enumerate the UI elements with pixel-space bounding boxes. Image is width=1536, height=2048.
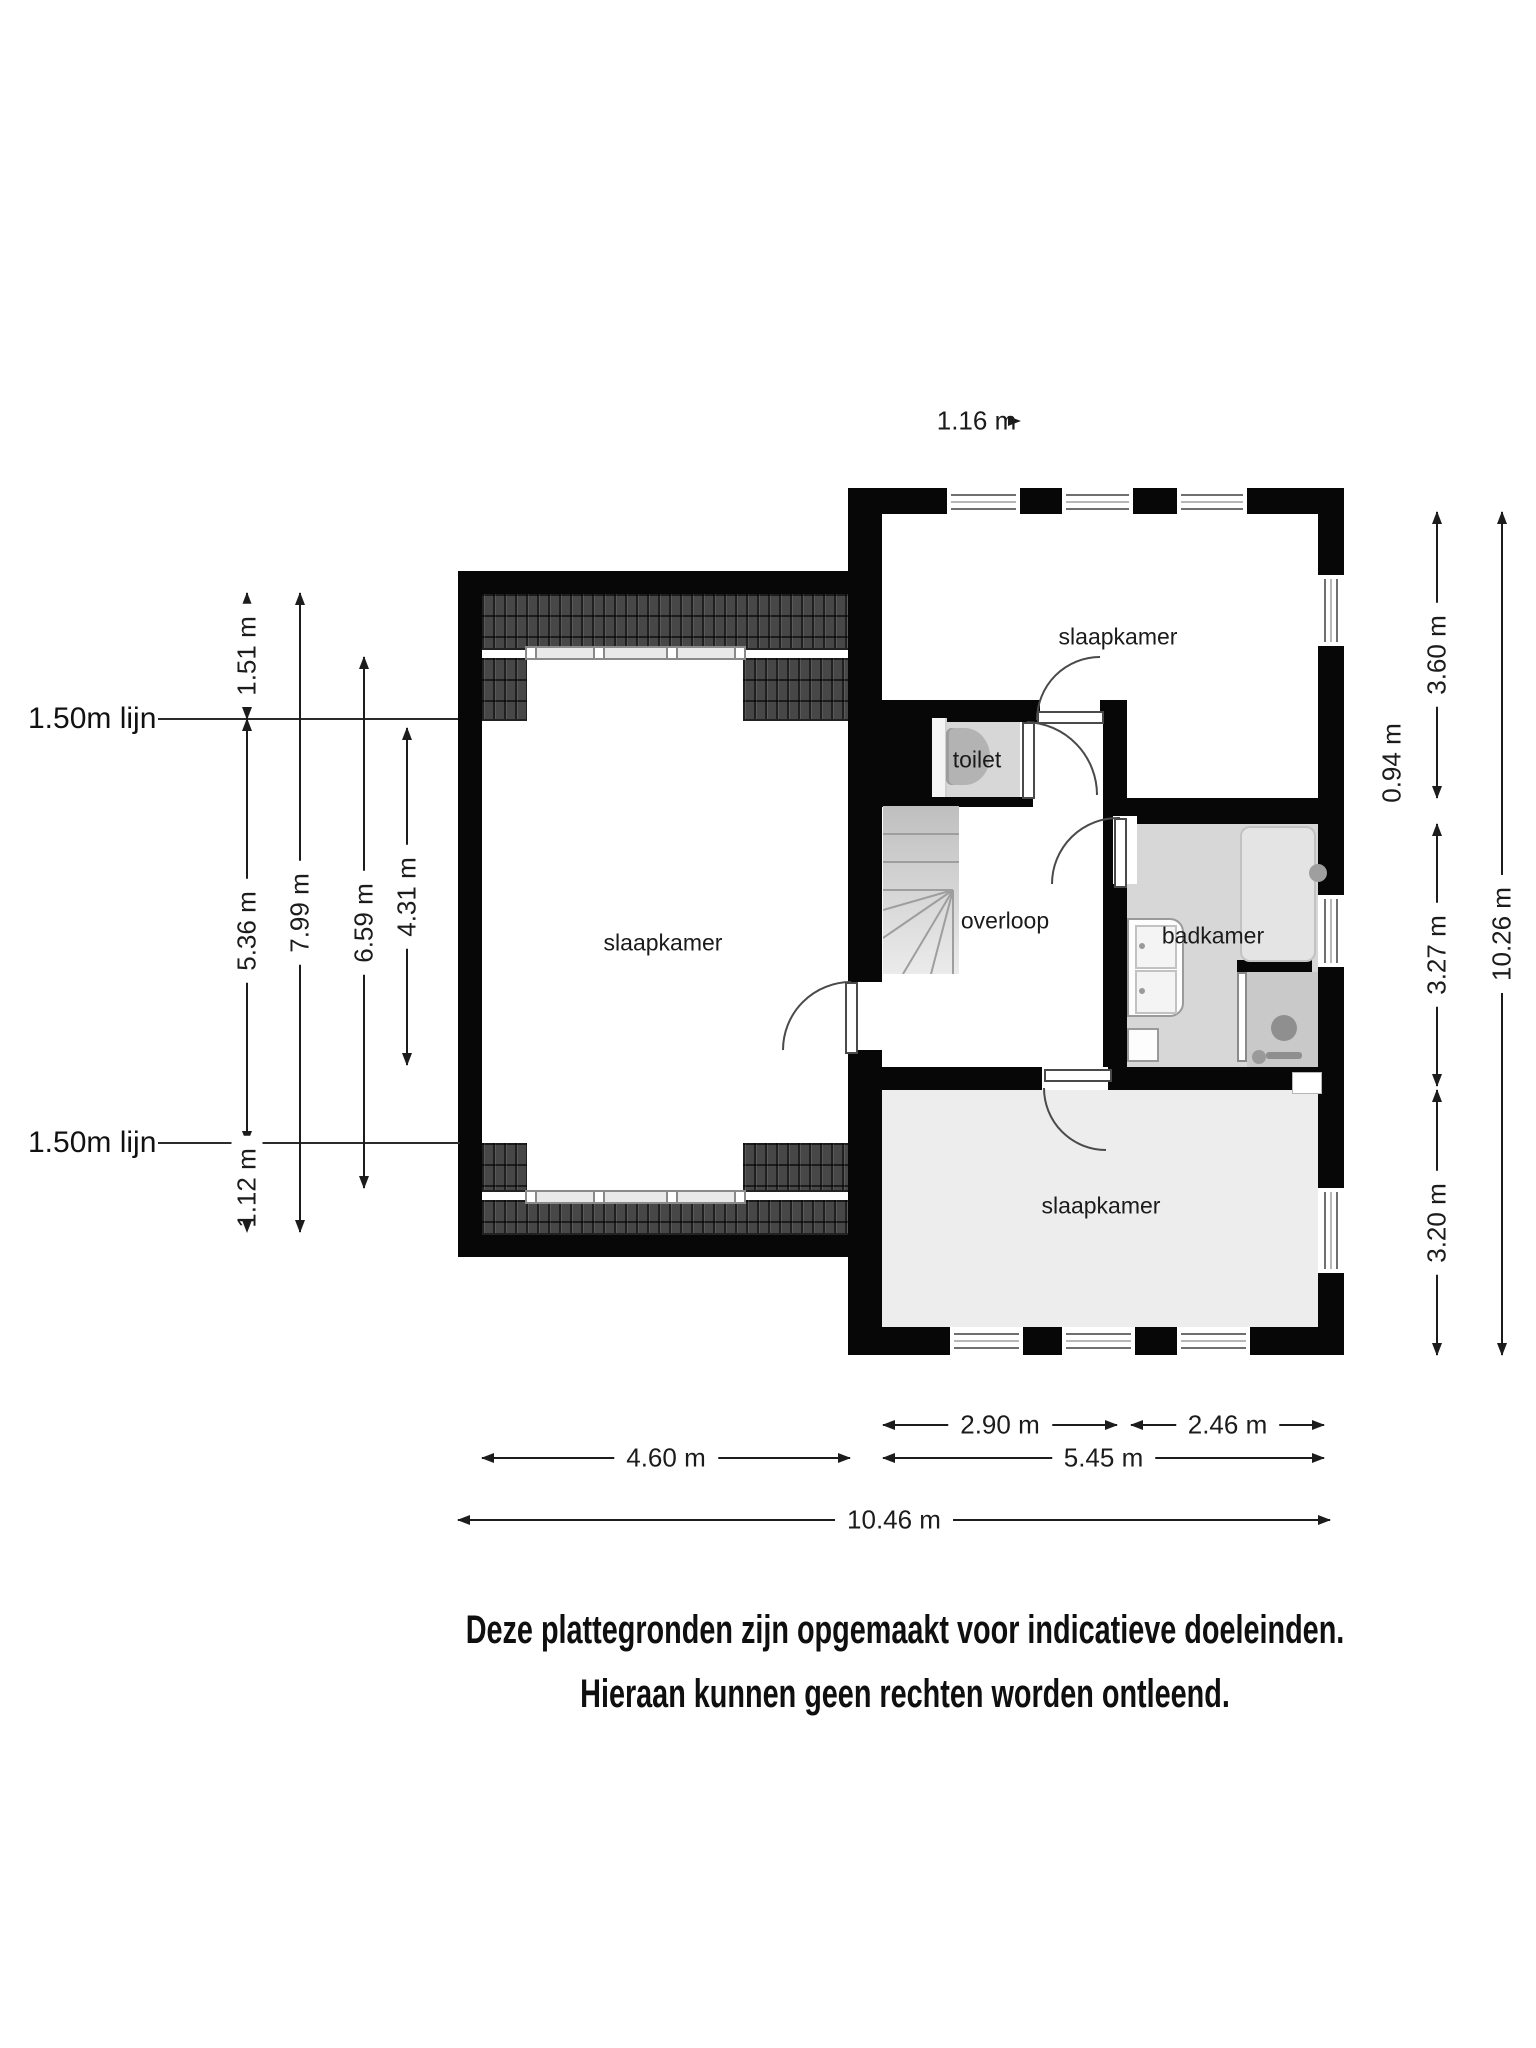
window-glass bbox=[1324, 579, 1338, 642]
disclaimer-line-2: Hieraan kunnen geen rechten worden ontle… bbox=[466, 1662, 1345, 1726]
roof-window-mullion bbox=[734, 646, 746, 660]
window-north-1 bbox=[947, 488, 1020, 516]
room-label-landing: overloop bbox=[961, 908, 1049, 935]
room-label-toilet: toilet bbox=[953, 747, 1002, 774]
dim-left-1-51: 1.51 m bbox=[246, 593, 248, 719]
roof-window-top bbox=[525, 646, 746, 660]
wall-toilet-north bbox=[932, 700, 1040, 722]
wall-bathroom-north bbox=[1127, 798, 1318, 824]
roof-window-mullion bbox=[525, 646, 537, 660]
window-south-2 bbox=[1062, 1327, 1135, 1355]
wall-left-block-south bbox=[458, 1233, 882, 1257]
window-glass bbox=[1066, 494, 1129, 510]
dim-bottom-2-46: 2.46 m bbox=[1131, 1424, 1324, 1426]
roof-band-top-right bbox=[743, 658, 848, 721]
height-line-1 bbox=[158, 718, 458, 720]
window-glass bbox=[1324, 1192, 1338, 1269]
roof-band-top-full bbox=[482, 594, 848, 650]
roof-window-mullion bbox=[666, 1190, 678, 1204]
window-glass bbox=[1181, 494, 1243, 510]
floorplan-page: slaapkamer slaapkamer toilet overloop ba… bbox=[0, 0, 1536, 2048]
room-label-bedroom-top: slaapkamer bbox=[1059, 624, 1178, 651]
disclaimer-line-1: Deze plattegronden zijn opgemaakt voor i… bbox=[466, 1598, 1345, 1662]
dim-left-6-59: 6.59 m bbox=[363, 657, 365, 1188]
wall-recess bbox=[1292, 1072, 1322, 1094]
window-south-3 bbox=[1177, 1327, 1250, 1355]
dim-left-7-99: 7.99 m bbox=[299, 593, 301, 1232]
door-bathroom bbox=[1114, 818, 1127, 888]
window-north-3 bbox=[1177, 488, 1247, 516]
height-line-2-label: 1.50m lijn bbox=[28, 1126, 156, 1160]
height-line-1-label: 1.50m lijn bbox=[28, 702, 156, 736]
window-east-bedroom-top bbox=[1318, 575, 1344, 646]
roof-window-mullion bbox=[525, 1190, 537, 1204]
height-line-2 bbox=[158, 1142, 460, 1144]
window-glass bbox=[951, 494, 1016, 510]
sink-icon bbox=[1135, 970, 1177, 1014]
dim-bottom-4-60: 4.60 m bbox=[482, 1457, 850, 1459]
dim-right-10-26: 10.26 m bbox=[1501, 512, 1503, 1355]
dim-right-3-27: 3.27 m bbox=[1436, 824, 1438, 1086]
window-east-bathroom bbox=[1318, 895, 1344, 967]
dim-bottom-2-90: 2.90 m bbox=[883, 1424, 1117, 1426]
dim-bottom-5-45: 5.45 m bbox=[883, 1457, 1324, 1459]
shower-faucet-icon bbox=[1266, 1052, 1302, 1059]
room-label-bedroom-left: slaapkamer bbox=[604, 930, 723, 957]
dim-left-5-36: 5.36 m bbox=[246, 719, 248, 1143]
roof-window-mullion bbox=[666, 646, 678, 660]
room-label-bathroom: badkamer bbox=[1162, 923, 1264, 950]
window-south-1 bbox=[950, 1327, 1023, 1355]
wall-left-block-north bbox=[458, 571, 882, 594]
wall-knob-icon bbox=[1309, 864, 1327, 882]
toilet-basin-icon bbox=[932, 718, 947, 797]
wall-right-block-west bbox=[848, 488, 882, 1355]
window-glass bbox=[954, 1333, 1019, 1349]
door-bedroom-top bbox=[1037, 711, 1104, 724]
roof-window-mullion bbox=[593, 1190, 605, 1204]
window-east-bedroom-bottom bbox=[1318, 1188, 1344, 1273]
shower-screen-icon bbox=[1237, 972, 1247, 1062]
door-bedroom-bottom bbox=[1044, 1069, 1112, 1082]
roof-band-bottom-left bbox=[482, 1143, 527, 1192]
roof-band-bottom-right bbox=[743, 1143, 848, 1192]
roof-window-mullion bbox=[593, 646, 605, 660]
wall-landing-east bbox=[1103, 700, 1127, 1090]
roof-window-bottom bbox=[525, 1190, 746, 1204]
window-glass bbox=[1066, 1333, 1131, 1349]
window-glass bbox=[1324, 899, 1338, 963]
dim-top-1-16: 1.16 m bbox=[933, 420, 1020, 422]
window-north-2 bbox=[1062, 488, 1133, 516]
door-bedroom-left bbox=[845, 982, 858, 1054]
roof-band-bottom-full bbox=[482, 1200, 848, 1235]
roof-band-top-left bbox=[482, 658, 527, 721]
shower-drain-icon bbox=[1252, 1050, 1266, 1064]
dim-bottom-10-46: 10.46 m bbox=[458, 1519, 1330, 1521]
dim-left-1-12: 1.12 m bbox=[246, 1143, 248, 1232]
room-label-bedroom-bottom: slaapkamer bbox=[1042, 1193, 1161, 1220]
bathroom-cabinet-icon bbox=[1127, 1028, 1159, 1062]
dim-left-4-31: 4.31 m bbox=[406, 728, 408, 1065]
wall-toilet-west bbox=[882, 700, 932, 807]
roof-window-mullion bbox=[734, 1190, 746, 1204]
dim-right-3-60: 3.60 m bbox=[1436, 512, 1438, 798]
disclaimer-text: Deze plattegronden zijn opgemaakt voor i… bbox=[466, 1598, 1345, 1726]
window-glass bbox=[1181, 1333, 1246, 1349]
stairs-icon bbox=[883, 806, 959, 974]
dim-right-0-94: 0.94 m bbox=[1377, 723, 1408, 803]
shower-head-icon bbox=[1271, 1015, 1297, 1041]
wall-left-block-west bbox=[458, 571, 482, 1257]
door-toilet bbox=[1022, 722, 1035, 799]
dim-right-3-20: 3.20 m bbox=[1436, 1090, 1438, 1355]
